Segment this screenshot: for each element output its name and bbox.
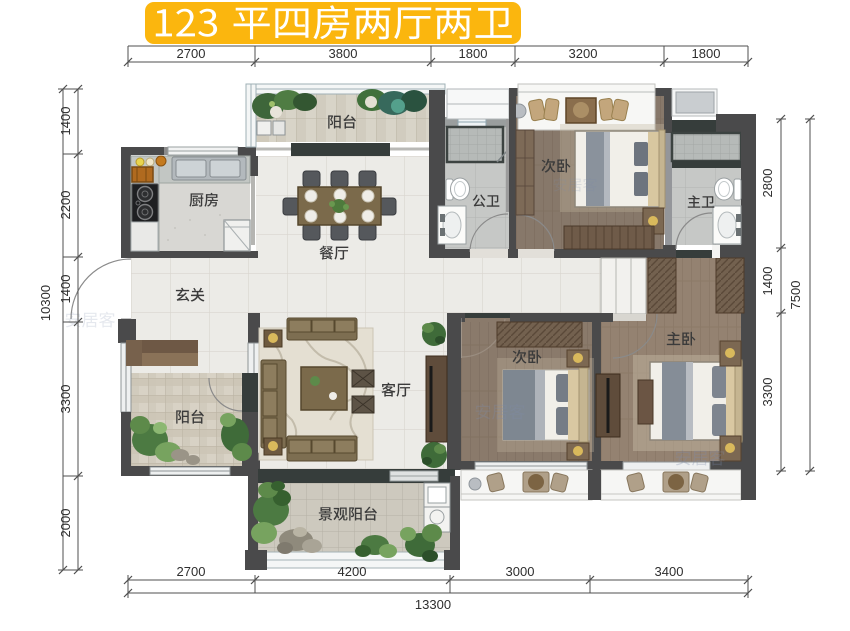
svg-text:1400: 1400 [58, 107, 73, 136]
svg-text:2700: 2700 [177, 46, 206, 61]
svg-text:1800: 1800 [692, 46, 721, 61]
svg-text:3300: 3300 [58, 385, 73, 414]
svg-text:3200: 3200 [569, 46, 598, 61]
svg-text:4200: 4200 [338, 564, 367, 579]
svg-text:1800: 1800 [459, 46, 488, 61]
svg-text:2800: 2800 [760, 169, 775, 198]
svg-text:3000: 3000 [506, 564, 535, 579]
svg-text:2000: 2000 [58, 509, 73, 538]
svg-text:10300: 10300 [38, 285, 53, 321]
svg-text:3400: 3400 [655, 564, 684, 579]
svg-text:7500: 7500 [788, 281, 803, 310]
svg-text:3800: 3800 [329, 46, 358, 61]
svg-text:1400: 1400 [58, 275, 73, 304]
svg-text:2700: 2700 [177, 564, 206, 579]
svg-text:13300: 13300 [415, 597, 451, 612]
svg-text:2200: 2200 [58, 191, 73, 220]
svg-text:3300: 3300 [760, 378, 775, 407]
svg-text:1400: 1400 [760, 267, 775, 296]
